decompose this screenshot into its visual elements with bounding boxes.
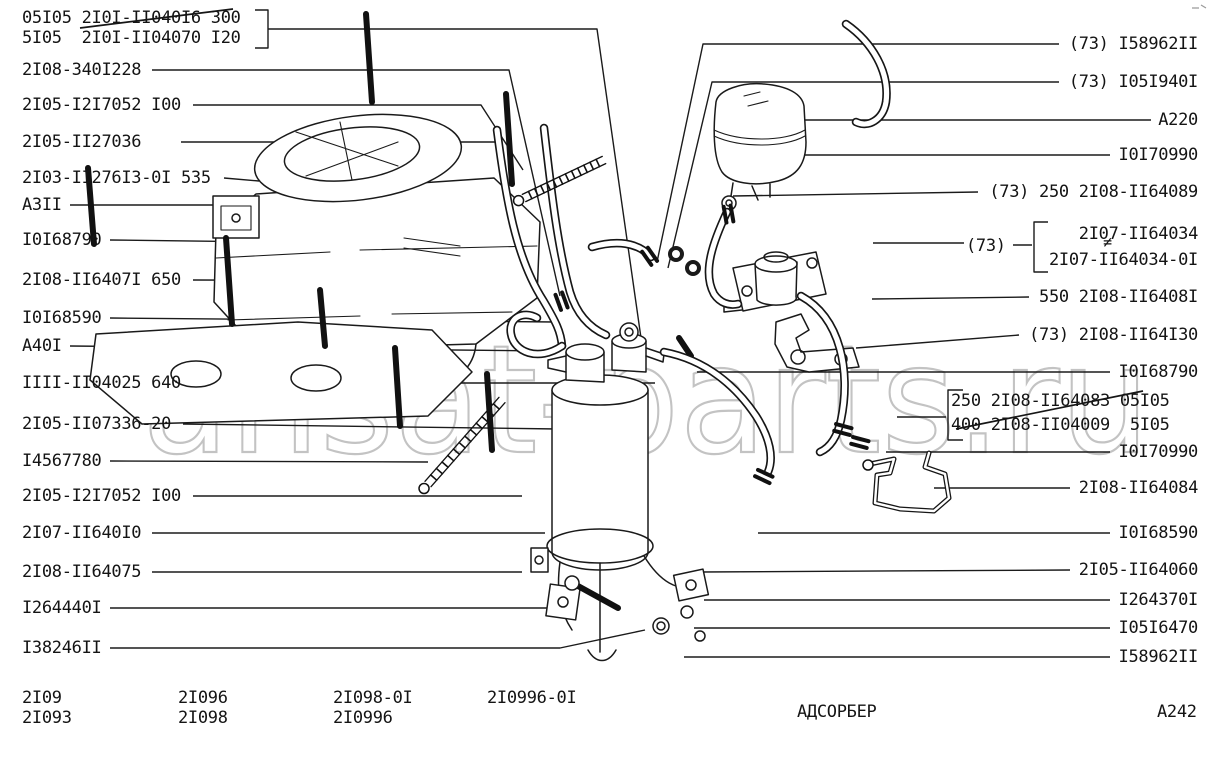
part-label-range: 400 2I08-II04009 5I05 (951, 415, 1170, 435)
sheet-code: A242 (1157, 702, 1197, 722)
part-label-left: A3II (22, 195, 62, 215)
clamp (556, 292, 568, 309)
vapor-separator-tank (714, 84, 806, 210)
part-label-left: 2I05-I2I7052 I00 (22, 486, 181, 506)
part-label-left: 2I05-II07336-20 (22, 414, 171, 434)
part-label-left: 2I08-II6407I 650 (22, 270, 181, 290)
part-label-option: 2I07-II64034-0I (1049, 250, 1198, 270)
model-column: 2I098-0I 2I0996 (333, 688, 412, 728)
part-label-right: I0I68590 (1119, 523, 1198, 543)
part-label-right: 2I08-II64084 (1079, 478, 1198, 498)
part-label-right: I05I6470 (1119, 618, 1198, 638)
part-label-right: I58962II (1119, 647, 1198, 667)
not-equal-sign: ≠ (1103, 234, 1112, 250)
strap (514, 156, 606, 205)
model-column: 2I09 2I093 (22, 688, 72, 728)
corner-smudge (1192, 5, 1206, 8)
alt-group-prefix: (73) (966, 236, 1006, 256)
part-label-right: I0I70990 (1119, 145, 1198, 165)
bracket-alt-group (1034, 222, 1048, 272)
part-label-left: I38246II (22, 638, 101, 658)
part-label-right: A220 (1158, 110, 1198, 130)
part-label-right: I0I68790 (1119, 362, 1198, 382)
part-label-left: 2I08-340I228 (22, 60, 141, 80)
bracket-top-left (255, 10, 268, 48)
part-label-right: (73) 2I08-II64I30 (1029, 325, 1198, 345)
part-label-left: 2I07-II640I0 (22, 523, 141, 543)
part-label-right: (73) I58962II (1069, 34, 1198, 54)
part-label-range: 250 2I08-II64083 05I05 (951, 391, 1170, 411)
part-label-right: (73) 250 2I08-II64089 (989, 182, 1198, 202)
part-label-left: IIII-II04025 640 (22, 373, 181, 393)
part-label-left: I4567780 (22, 451, 101, 471)
page-title: АДСОРБЕР (797, 702, 876, 722)
catalog-page: ansat-parts.ru (0, 0, 1217, 773)
parts-diagram: ansat-parts.ru (0, 0, 1217, 773)
part-label-left: 2I05-I2I7052 I00 (22, 95, 181, 115)
part-label-right: I264370I (1119, 590, 1198, 610)
part-label-option: 2I07-II64034 (1079, 224, 1198, 244)
part-label-left: 2I05-II27036 (22, 132, 141, 152)
model-column: 2I096 2I098 (178, 688, 228, 728)
part-label-left: 5I05 2I0I-II04070 I20 (22, 28, 241, 48)
part-label-right: 550 2I08-II6408I (1039, 287, 1198, 307)
part-label-left: 05I05 2I0I-II040I6 300 (22, 8, 241, 28)
part-label-right: (73) I05I940I (1069, 72, 1198, 92)
part-label-left: A40I (22, 336, 62, 356)
part-label-right: 2I05-II64060 (1079, 560, 1198, 580)
model-column: 2I0996-0I (487, 688, 576, 708)
part-label-left: 2I08-II64075 (22, 562, 141, 582)
part-label-left: I0I68590 (22, 308, 101, 328)
part-label-right: I0I70990 (1119, 442, 1198, 462)
part-label-left: I264440I (22, 598, 101, 618)
part-label-left: 2I03-II276I3-0I 535 (22, 168, 211, 188)
part-label-left: I0I68790 (22, 230, 101, 250)
